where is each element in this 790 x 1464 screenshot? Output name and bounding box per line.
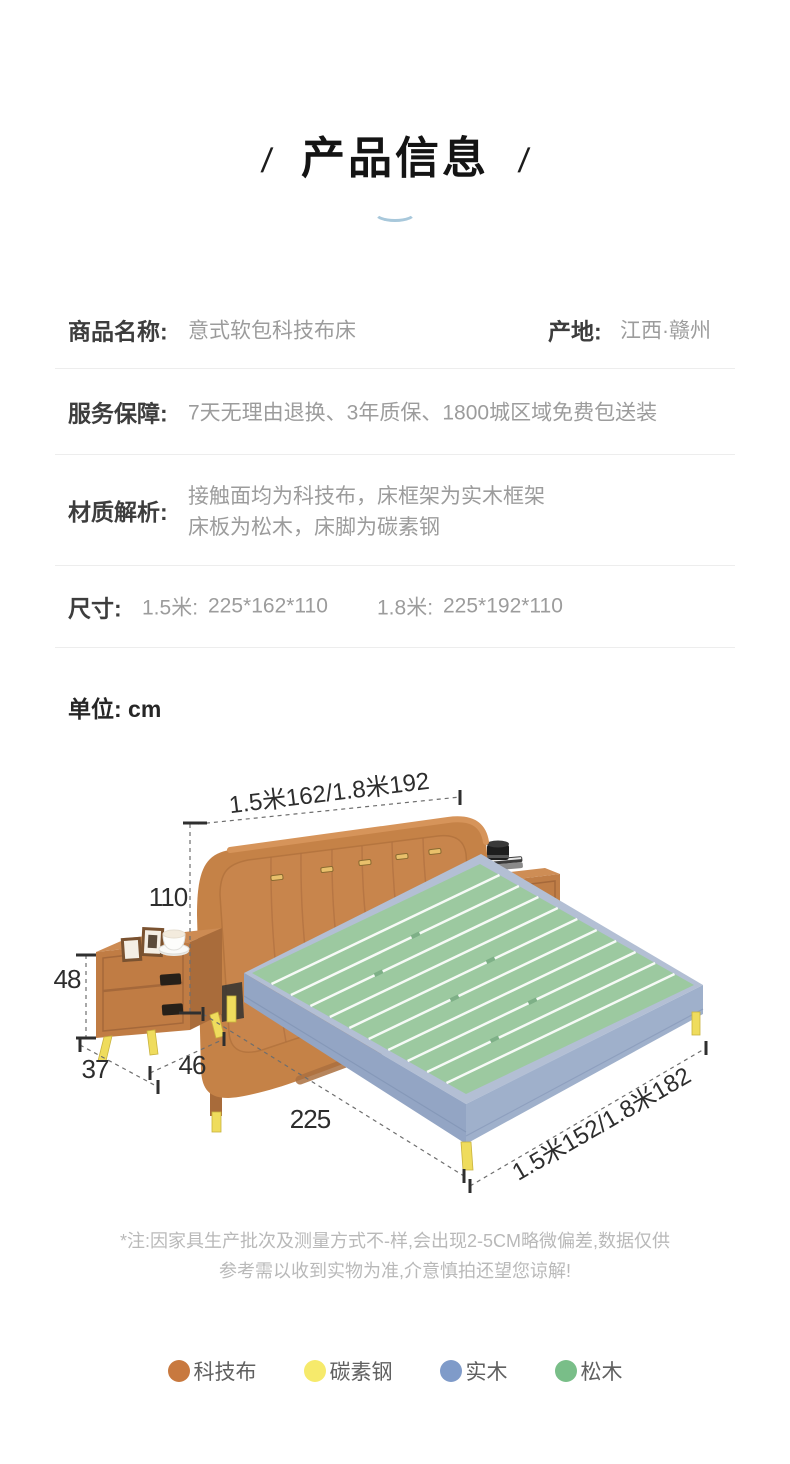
product-info-page: / 产品信息 / 商品名称: 意式软包科技布床 产地: 江西·赣州 服务保障: … xyxy=(0,0,790,1464)
bed-leg-front xyxy=(461,1142,473,1170)
fabric-color-dot xyxy=(168,1360,190,1382)
black-jar xyxy=(487,841,509,861)
size-label: 尺寸: xyxy=(68,589,122,623)
row-service: 服务保障: 7天无理由退换、3年质保、1800城区域免费包送装 xyxy=(55,369,735,455)
photo-frames xyxy=(122,929,162,961)
legend-item-fabric: 科技布 xyxy=(168,1356,257,1386)
header: / 产品信息 / xyxy=(0,122,790,222)
row-size: 尺寸: 1.5米: 225*162*110 1.8米: 225*192*110 xyxy=(55,566,735,648)
legend-label: 科技布 xyxy=(194,1356,257,1386)
title-slash-right: / xyxy=(516,142,531,181)
material-line-1: 接触面均为科技布，床框架为实木框架 xyxy=(188,481,545,512)
drawer-handle xyxy=(160,973,182,985)
legend-item-pine: 松木 xyxy=(555,1356,623,1386)
headboard-foot xyxy=(212,1112,221,1132)
dim-label-nightstand-width: 46 xyxy=(179,1050,206,1080)
material-values: 接触面均为科技布，床框架为实木框架 床板为松木，床脚为碳素钢 xyxy=(188,481,545,543)
title-underline-arc xyxy=(373,202,417,222)
legend-label: 碳素钢 xyxy=(330,1356,393,1386)
size-1-5-label: 1.5米: xyxy=(142,591,198,621)
size-1-8-label: 1.8米: xyxy=(377,591,433,621)
product-name-value: 意式软包科技布床 xyxy=(188,314,356,344)
material-label: 材质解析: xyxy=(68,493,168,527)
carbon-steel-color-dot xyxy=(304,1360,326,1382)
dim-label-bed-height: 110 xyxy=(149,882,188,912)
dim-label-headboard-width: 1.5米162/1.8米192 xyxy=(228,768,431,819)
origin-value: 江西·赣州 xyxy=(620,314,711,344)
product-info-table: 商品名称: 意式软包科技布床 产地: 江西·赣州 服务保障: 7天无理由退换、3… xyxy=(55,292,735,648)
pine-color-dot xyxy=(555,1360,577,1382)
nightstand-leg xyxy=(147,1030,158,1055)
bed-leg-back-left xyxy=(227,996,236,1022)
service-value: 7天无理由退换、3年质保、1800城区域免费包送装 xyxy=(188,396,657,426)
size-1-5-value: 225*162*110 xyxy=(208,594,328,618)
product-name-label: 商品名称: xyxy=(68,312,168,346)
row-material: 材质解析: 接触面均为科技布，床框架为实木框架 床板为松木，床脚为碳素钢 xyxy=(55,455,735,566)
disclaimer-line-1: *注:因家具生产批次及测量方式不-样,会出现2-5CM略微偏差,数据仅供 xyxy=(0,1226,790,1256)
title-row: / 产品信息 / xyxy=(0,122,790,186)
dim-label-bed-length: 225 xyxy=(290,1104,331,1134)
bed-diagram-svg: 1.5米162/1.8米192 110 48 37 46 225 1.5米152… xyxy=(0,760,790,1220)
unit-note: 单位: cm xyxy=(68,690,161,724)
dim-label-nightstand-height: 48 xyxy=(54,964,81,994)
dim-label-nightstand-depth: 37 xyxy=(82,1054,109,1084)
material-legend: 科技布 碳素钢 实木 松木 xyxy=(0,1356,790,1386)
row-product-name: 商品名称: 意式软包科技布床 产地: 江西·赣州 xyxy=(55,292,735,369)
service-label: 服务保障: xyxy=(68,394,168,428)
page-title: 产品信息 xyxy=(301,122,489,186)
material-line-2: 床板为松木，床脚为碳素钢 xyxy=(188,512,545,543)
disclaimer: *注:因家具生产批次及测量方式不-样,会出现2-5CM略微偏差,数据仅供 参考需… xyxy=(0,1226,790,1286)
bed-leg-right xyxy=(692,1012,700,1035)
disclaimer-line-2: 参考需以收到实物为准,介意慎拍还望您谅解! xyxy=(0,1256,790,1286)
size-1-8-value: 225*192*110 xyxy=(443,594,563,618)
legend-item-carbon-steel: 碳素钢 xyxy=(304,1356,393,1386)
origin-label: 产地: xyxy=(548,312,602,346)
solid-wood-color-dot xyxy=(440,1360,462,1382)
legend-label: 实木 xyxy=(466,1356,508,1386)
legend-label: 松木 xyxy=(581,1356,623,1386)
bed-dimension-diagram: 1.5米162/1.8米192 110 48 37 46 225 1.5米152… xyxy=(0,760,790,1220)
title-slash-left: / xyxy=(259,142,274,181)
legend-item-solid-wood: 实木 xyxy=(440,1356,508,1386)
